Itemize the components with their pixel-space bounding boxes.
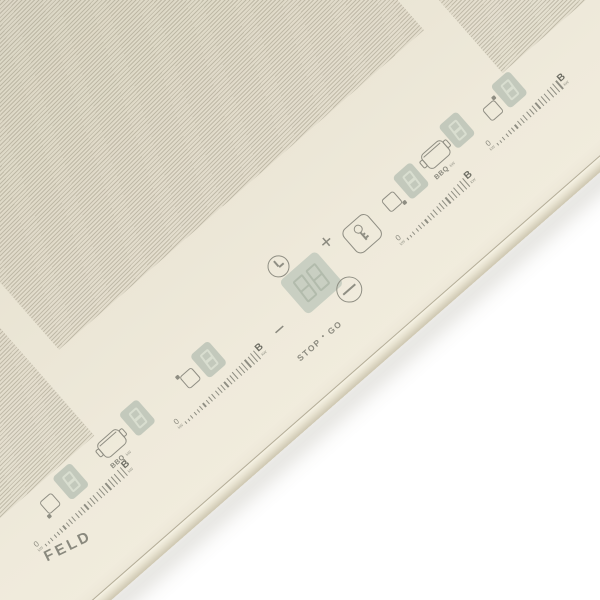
product-photo: 0kW BkW BBQ kW 0kW BkW + − STOP	[0, 0, 600, 600]
minus-touch-key: −	[268, 317, 293, 343]
zone-position-dot	[402, 200, 408, 206]
seven-segment-8	[401, 170, 421, 192]
key-icon-stem	[359, 232, 367, 241]
zone-position-dot	[47, 513, 53, 519]
zone-select-icon-back-right	[482, 99, 505, 122]
seven-segment-8	[447, 119, 467, 141]
pot-rim	[423, 142, 440, 157]
zone-select-icon-back-left	[179, 367, 202, 390]
child-lock-key-button	[340, 211, 385, 256]
zone-position-dot	[491, 95, 497, 101]
zone-position-dot	[175, 375, 181, 381]
pot-rim	[99, 431, 116, 446]
zone-select-icon-front-right	[381, 190, 404, 213]
zone-select-icon-front-left	[39, 492, 62, 515]
plus-touch-key: +	[314, 230, 339, 256]
cooktop-glass: 0kW BkW BBQ kW 0kW BkW + − STOP	[0, 0, 600, 600]
timer-display	[279, 250, 344, 315]
seven-segment-8	[61, 470, 81, 492]
seven-segment-8	[199, 348, 219, 370]
seven-segment-8	[127, 407, 147, 429]
seven-segment-8	[499, 78, 519, 100]
